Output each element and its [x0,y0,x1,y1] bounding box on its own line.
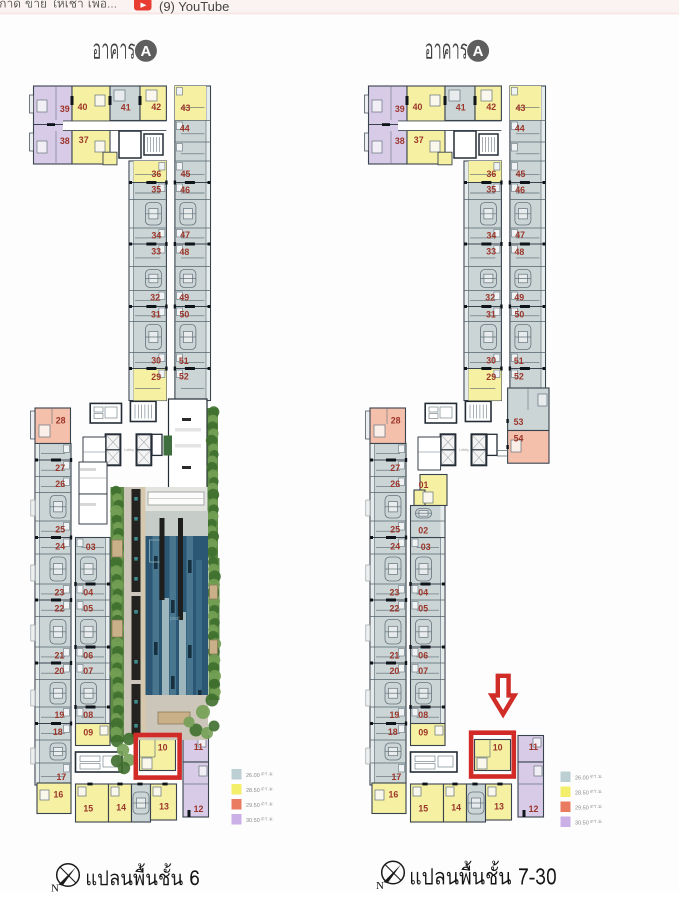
svg-text:26.00: 26.00 [575,776,589,782]
svg-text:28.50: 28.50 [246,788,260,794]
svg-text:53: 53 [514,417,524,427]
svg-text:N: N [51,883,59,893]
svg-text:28.50: 28.50 [575,791,589,797]
svg-text:30.50: 30.50 [575,821,589,827]
svg-text:01: 01 [419,480,429,490]
svg-text:29.50: 29.50 [575,806,589,812]
svg-text:26.00: 26.00 [246,773,260,779]
svg-text:30.50: 30.50 [246,818,260,824]
svg-text:(9) YouTube: (9) YouTube [159,0,229,14]
svg-text:A: A [140,43,151,60]
svg-text:02: 02 [418,525,428,535]
svg-text:29.50: 29.50 [246,803,260,809]
svg-text:54: 54 [514,434,524,444]
svg-text:N: N [376,880,384,892]
svg-text:pool: pool [170,616,179,622]
svg-text:A: A [473,43,484,60]
